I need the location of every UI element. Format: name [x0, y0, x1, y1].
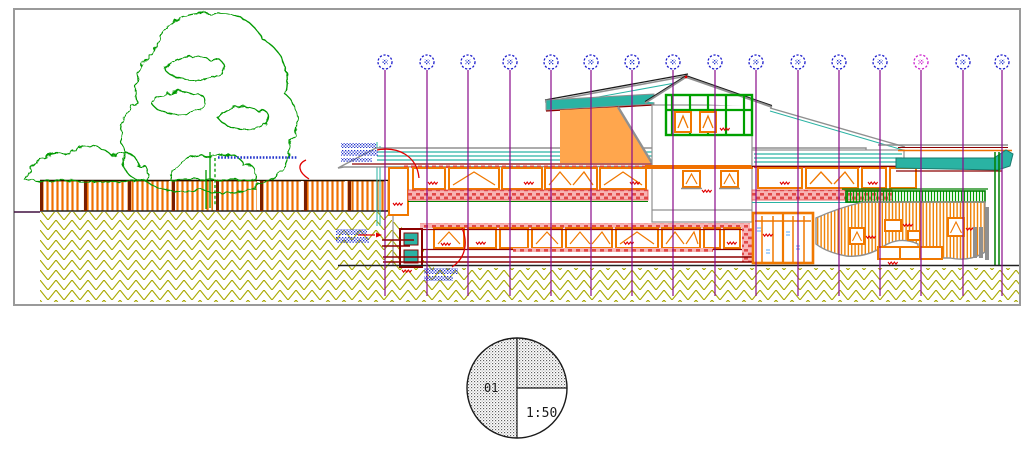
drawing-scale: 1:50	[526, 406, 557, 421]
grid-marker	[666, 55, 680, 69]
window-ribbon-lower	[434, 228, 740, 248]
ridge-mark	[685, 76, 688, 79]
entrance-door	[753, 213, 813, 263]
roof-link-teal	[770, 111, 903, 150]
drawing-number: 01	[484, 381, 498, 395]
tree-foliage-clump	[165, 56, 224, 80]
grid-marker	[873, 55, 887, 69]
shrub	[170, 154, 256, 180]
vegetation	[26, 13, 297, 209]
grid-marker	[503, 55, 517, 69]
tree	[121, 13, 297, 193]
grid-marker	[544, 55, 558, 69]
roof-right-wing	[752, 150, 904, 167]
tree-foliage-clump	[218, 107, 269, 129]
grid-marker	[461, 55, 475, 69]
grid-marker	[956, 55, 970, 69]
main-building	[338, 74, 1019, 272]
left-end-door	[389, 168, 408, 215]
grid-marker	[749, 55, 763, 69]
column	[979, 227, 983, 258]
boundary-fence	[40, 181, 392, 212]
column	[973, 227, 977, 258]
grid-marker	[995, 55, 1009, 69]
grid-marker	[832, 55, 846, 69]
cad-viewport: 01 1:50	[0, 0, 1031, 454]
gable-orange-wall	[560, 107, 652, 163]
column	[985, 207, 989, 260]
annex-green-roof	[846, 191, 985, 202]
grid-marker	[791, 55, 805, 69]
grid-markers	[378, 55, 1009, 69]
grid-marker	[625, 55, 639, 69]
tree-foliage-clump	[152, 92, 205, 115]
roof-link-line	[770, 108, 905, 147]
grid-marker	[378, 55, 392, 69]
grid-marker	[708, 55, 722, 69]
grid-marker	[584, 55, 598, 69]
grid-marker-highlighted	[914, 55, 928, 69]
elevation-drawing: 01 1:50	[0, 0, 1031, 454]
tower-beam	[645, 165, 753, 169]
sheet-title-bubble: 01 1:50	[467, 338, 567, 438]
grid-marker	[420, 55, 434, 69]
leader-line	[300, 160, 309, 179]
window-ribbon-upper-right	[758, 168, 916, 188]
floor-slab-band	[408, 190, 648, 200]
